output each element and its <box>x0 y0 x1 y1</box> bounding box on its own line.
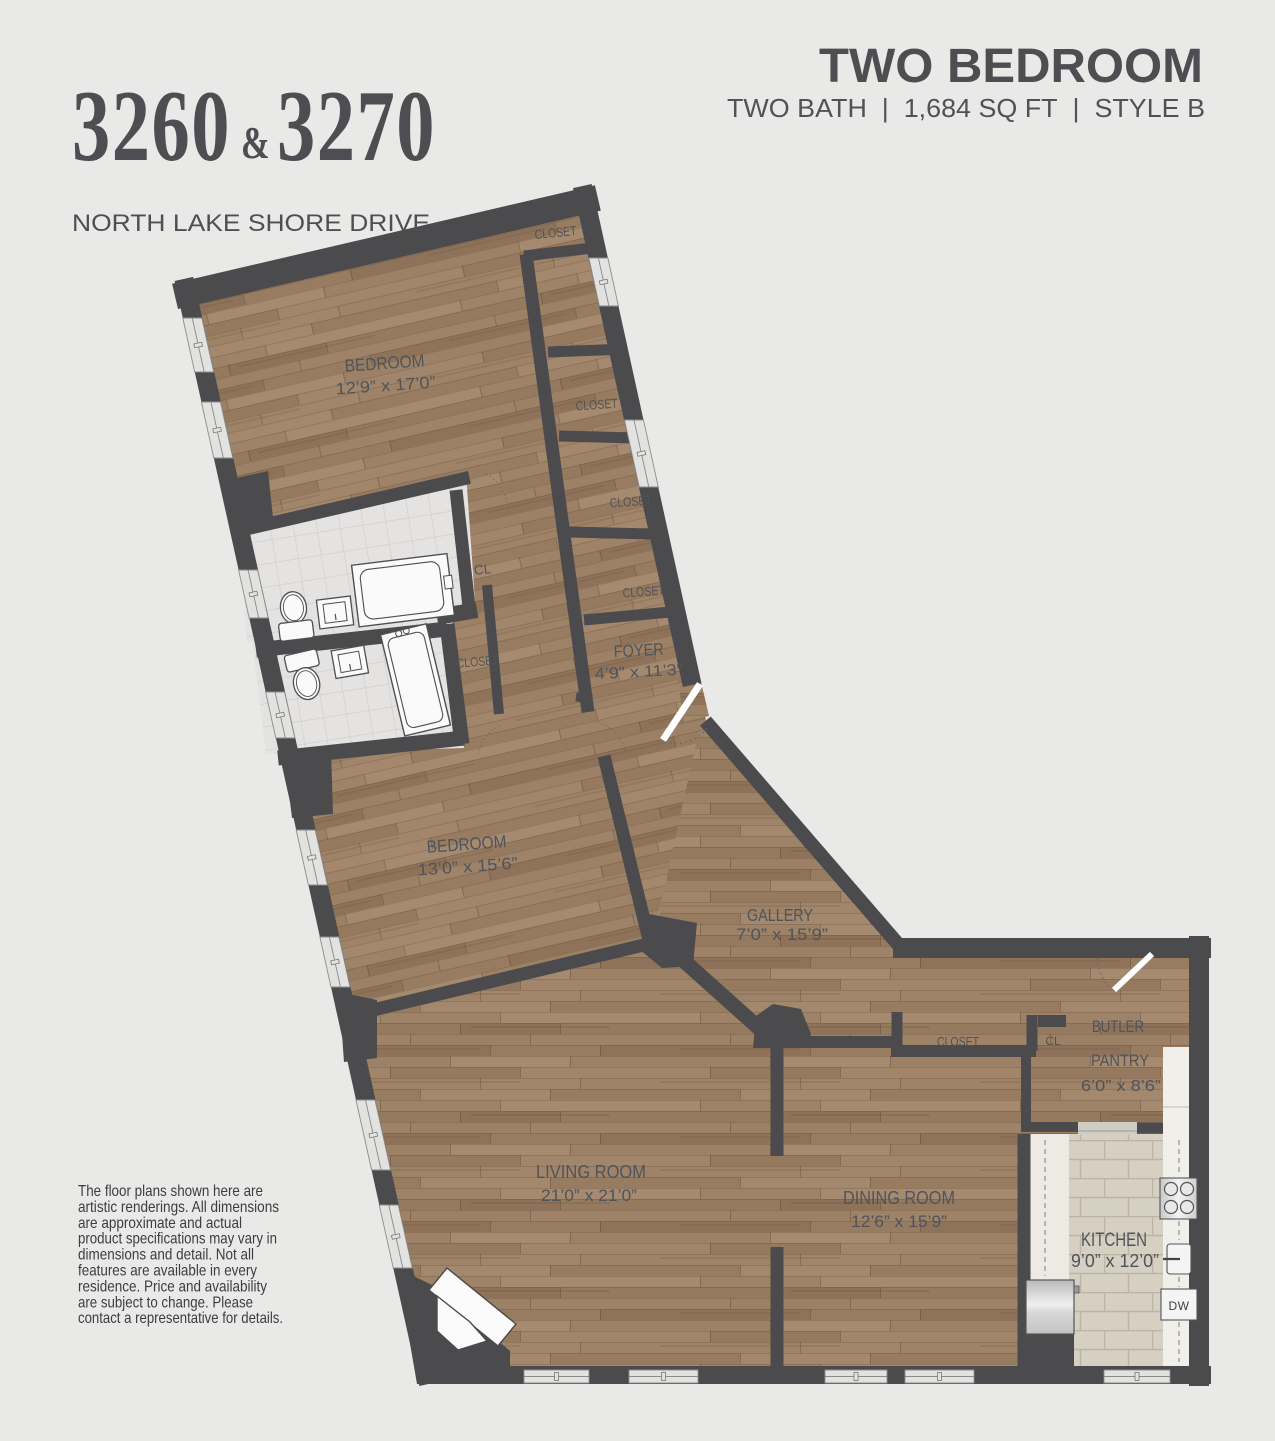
svg-text:TWO BEDROOM: TWO BEDROOM <box>819 40 1203 93</box>
svg-text:21’0” x 21’0”: 21’0” x 21’0” <box>541 1186 637 1205</box>
svg-text:DW: DW <box>1169 1299 1190 1313</box>
svg-text:LIVING ROOM: LIVING ROOM <box>536 1162 646 1182</box>
svg-text:12’6” x 15’9”: 12’6” x 15’9” <box>851 1212 947 1231</box>
svg-text:TWO BATH | 1,684 SQ FT | S: TWO BATH | 1,684 SQ FT | STYLE B <box>727 93 1205 123</box>
svg-text:BUTLER: BUTLER <box>1092 1018 1144 1036</box>
svg-text:7’0” x 15’9”: 7’0” x 15’9” <box>736 926 828 944</box>
svg-text:3260: 3260 <box>72 69 231 182</box>
svg-text:9’0” x 12’0”: 9’0” x 12’0” <box>1071 1251 1159 1271</box>
svg-text:KITCHEN: KITCHEN <box>1081 1230 1147 1251</box>
svg-text:residence. Price and availabil: residence. Price and availability <box>78 1278 267 1295</box>
svg-text:CLOSET: CLOSET <box>937 1034 979 1049</box>
svg-text:features are available in ever: features are available in every <box>78 1263 257 1280</box>
svg-text:are approximate and actual: are approximate and actual <box>78 1215 242 1232</box>
svg-text:dimensions and detail. Not all: dimensions and detail. Not all <box>78 1247 254 1264</box>
svg-text:FOYER: FOYER <box>613 640 664 662</box>
svg-text:PANTRY: PANTRY <box>1091 1052 1149 1070</box>
svg-text:&: & <box>241 117 270 168</box>
svg-text:contact a representative for d: contact a representative for details. <box>78 1310 283 1327</box>
svg-text:CL: CL <box>1045 1034 1061 1048</box>
svg-text:CL: CL <box>473 561 492 577</box>
svg-text:GALLERY: GALLERY <box>747 905 813 925</box>
svg-text:CLOSET: CLOSET <box>575 396 618 414</box>
svg-text:are subject to change. Please: are subject to change. Please <box>78 1294 253 1311</box>
svg-text:product specifications may var: product specifications may vary in <box>78 1231 277 1248</box>
svg-text:CLOSET: CLOSET <box>609 493 652 511</box>
svg-text:artistic renderings. All dimen: artistic renderings. All dimensions <box>78 1199 279 1216</box>
svg-text:NORTH LAKE SHORE DRIVE: NORTH LAKE SHORE DRIVE <box>72 210 430 237</box>
svg-text:3270: 3270 <box>277 69 436 182</box>
svg-text:DINING ROOM: DINING ROOM <box>843 1188 955 1208</box>
svg-text:6’0” x 8’6”: 6’0” x 8’6” <box>1081 1078 1161 1095</box>
svg-text:CLOSET: CLOSET <box>622 583 665 601</box>
svg-text:The floor plans shown here are: The floor plans shown here are <box>78 1183 263 1200</box>
